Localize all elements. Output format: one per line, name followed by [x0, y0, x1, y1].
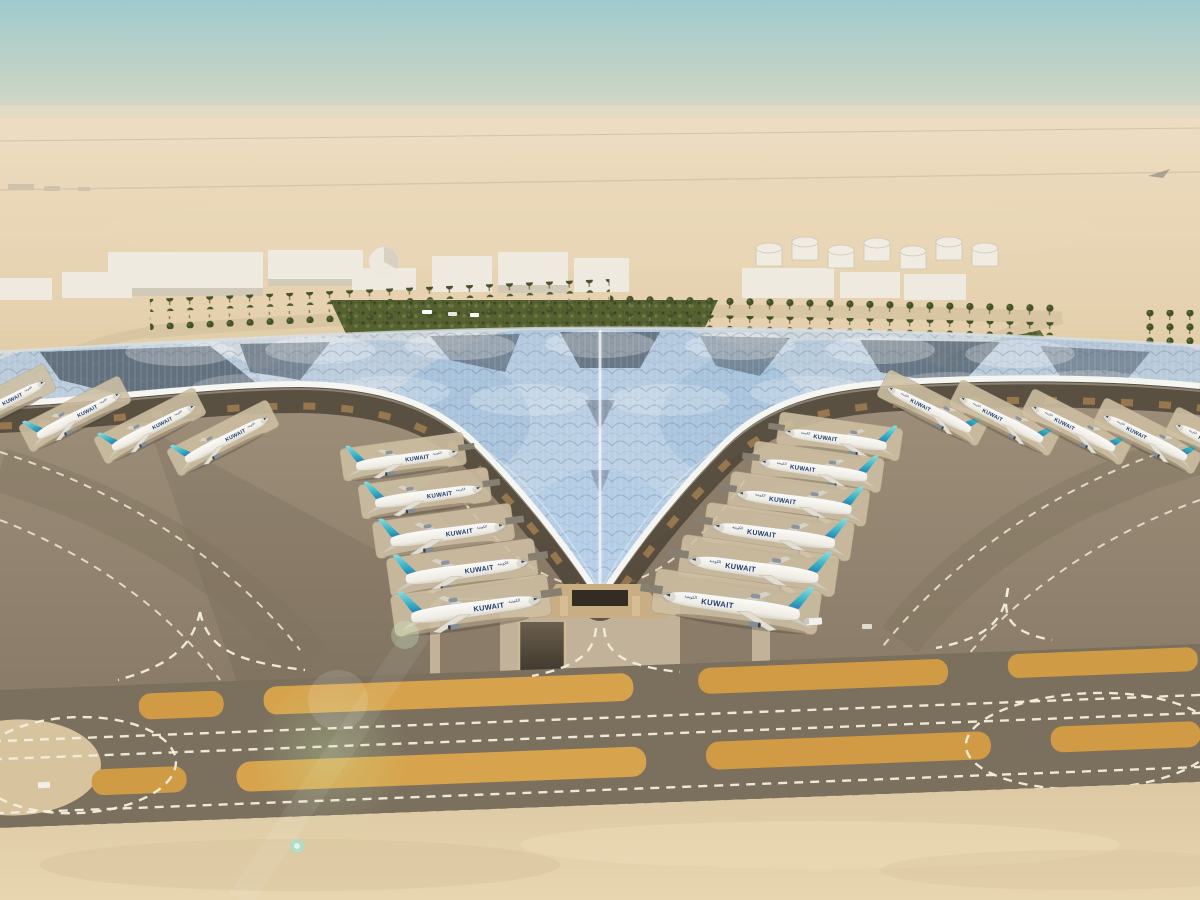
- aerial-render-scene: KUWAIT الكويتية KUWAIT الكويتية: [0, 0, 1200, 900]
- entrance-glazing: [572, 590, 628, 606]
